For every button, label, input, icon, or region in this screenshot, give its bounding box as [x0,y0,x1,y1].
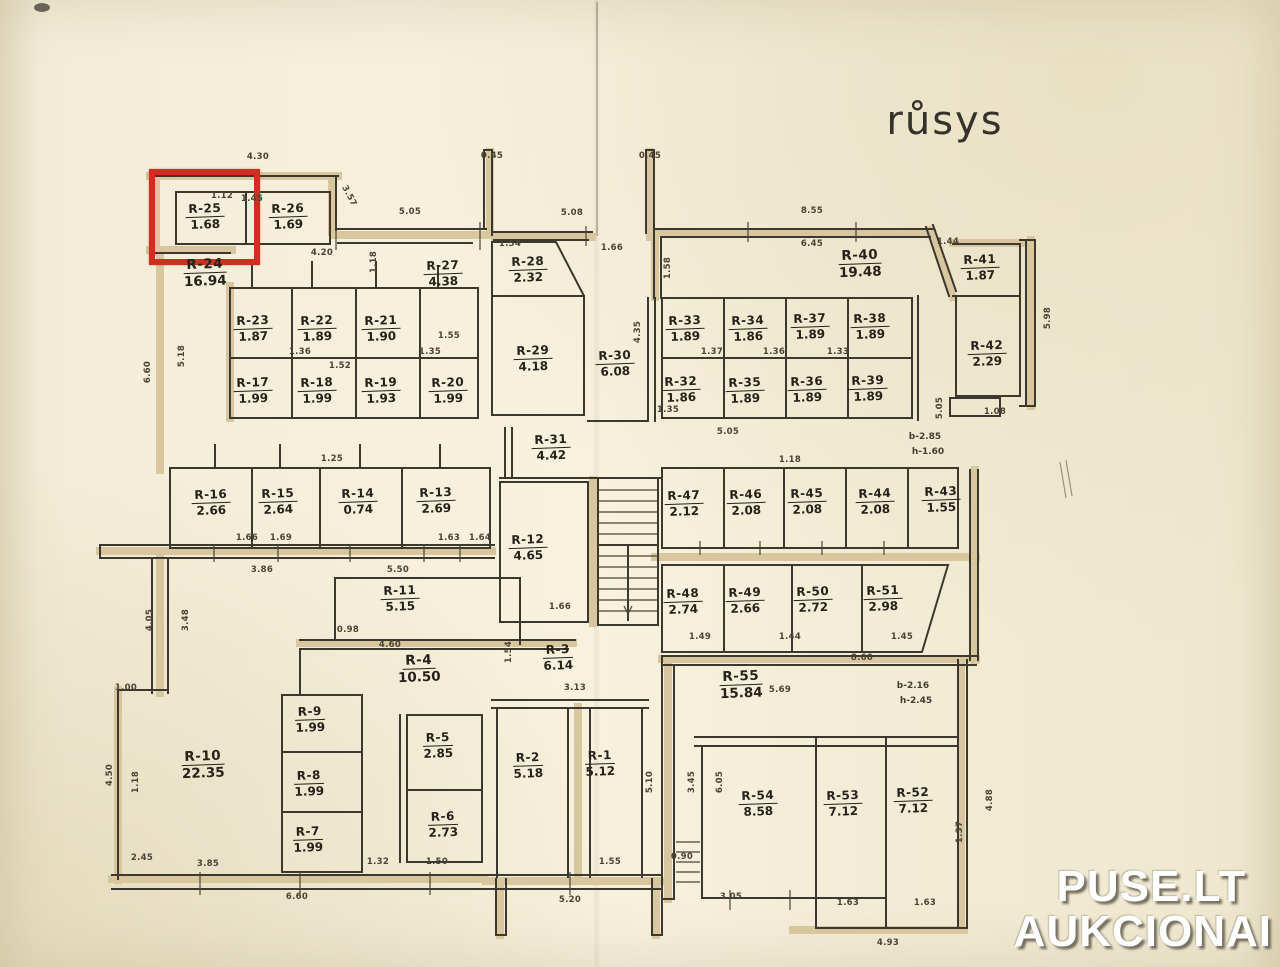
dimension-label: 1.63 [914,898,936,908]
dimension-label: 2.45 [131,853,153,863]
dimension-label: 1.69 [270,533,292,543]
room-label-r-13: R-132.69 [416,483,456,516]
dimension-label: 1.44 [937,237,959,247]
dimension-label: 1.37 [955,821,965,843]
dimension-label: 4.93 [877,938,899,948]
walls-thick-layer [100,152,1031,935]
dimension-label: 5.18 [177,345,187,367]
height-annotation: h-1.60 [912,447,944,457]
dimension-label: 3.05 [720,892,742,902]
room-label-r-16: R-162.66 [191,485,231,518]
room-label-r-47: R-472.12 [664,486,704,519]
height-annotation: b-2.85 [909,432,941,442]
dimension-label: 8.60 [851,653,873,663]
dimension-label: 5.50 [387,565,409,575]
room-label-r-43: R-431.55 [921,482,961,515]
room-label-r-8: R-81.99 [293,766,324,798]
dimension-label: 5.05 [399,207,421,217]
dimension-label: 6.60 [286,892,308,902]
room-label-r-44: R-442.08 [855,484,895,517]
room-label-r-53: R-537.12 [823,786,863,819]
dimension-label: 1.12 [211,191,233,201]
dimension-label: 5.08 [561,208,583,218]
room-label-r-10: R-1022.35 [181,747,225,782]
room-label-r-45: R-452.08 [787,484,827,517]
dimension-label: 5.10 [645,771,655,793]
room-label-r-30: R-306.08 [595,346,635,379]
height-annotation: b-2.16 [897,681,929,691]
room-label-r-25: R-251.68 [185,199,225,232]
dimension-label: 0.45 [481,151,503,161]
dimension-label: 5.69 [769,685,791,695]
dimension-label: 1.36 [763,347,785,357]
dimension-label: 4.60 [379,640,401,650]
room-label-r-12: R-124.65 [508,530,548,563]
room-label-r-18: R-181.99 [297,373,337,406]
dimension-label: 3.45 [687,771,697,793]
dimension-label: 1.49 [689,632,711,642]
room-label-r-7: R-71.99 [292,822,323,854]
dimension-label: 1.45 [241,194,263,204]
room-label-r-5: R-52.85 [422,728,453,760]
floor-plan-walls [0,0,1280,967]
scan-smudge [34,3,50,12]
dimension-label: 1.37 [701,347,723,357]
room-label-r-19: R-191.93 [361,373,401,406]
dimension-label: 1.44 [779,632,801,642]
room-label-r-24: R-2416.94 [183,255,227,290]
room-label-r-27: R-274.38 [423,256,463,289]
dimension-label: 3.48 [181,609,191,631]
room-label-r-48: R-482.74 [663,584,703,617]
room-label-r-20: R-201.99 [428,373,468,406]
dimension-label: 5.05 [935,397,945,419]
room-label-r-33: R-331.89 [665,311,705,344]
dimension-label: 1.55 [438,331,460,341]
dimension-label: 1.33 [827,347,849,357]
room-label-r-14: R-140.74 [338,484,378,517]
dimension-label: 1.18 [369,251,379,273]
dimension-label: 1.45 [891,632,913,642]
room-label-r-29: R-294.18 [513,341,553,374]
room-label-r-17: R-171.99 [233,373,273,406]
room-label-r-26: R-261.69 [268,199,308,232]
dimension-label: 1.32 [367,857,389,867]
dimension-label: 4.05 [145,609,155,631]
dimension-label: 1.66 [236,533,258,543]
dimension-label: 3.86 [251,565,273,575]
dimension-label: 5.20 [559,895,581,905]
dimension-label: 1.36 [289,347,311,357]
watermark-line2: AUKCIONAI [1014,909,1272,955]
room-label-r-28: R-282.32 [508,252,548,285]
dimension-label: 4.35 [633,321,643,343]
room-label-r-38: R-381.89 [850,309,890,342]
dimension-label: 3.13 [564,683,586,693]
room-label-r-1: R-15.12 [584,746,615,778]
room-label-r-40: R-4019.48 [838,246,882,281]
dimension-label: 1.35 [657,405,679,415]
room-label-r-32: R-321.86 [661,372,701,405]
dimension-label: 6.45 [801,239,823,249]
room-label-r-23: R-231.87 [233,311,273,344]
dimension-label: 1.50 [426,857,448,867]
room-label-r-9: R-91.99 [294,702,325,734]
room-label-r-54: R-548.58 [738,786,778,819]
room-label-r-42: R-422.29 [967,336,1007,369]
dimension-label: 0.98 [337,625,359,635]
dimension-label: 1.54 [499,239,521,249]
room-label-r-21: R-211.90 [361,311,401,344]
watermark: PUSE.LT AUKCIONAI [1014,864,1276,956]
dimension-label: 1.63 [837,898,859,908]
dimension-label: 1.66 [601,243,623,253]
room-label-r-41: R-411.87 [960,250,1000,283]
dimension-label: 5.05 [717,427,739,437]
room-label-r-6: R-62.73 [427,807,458,839]
dimension-label: 4.30 [247,152,269,162]
dimension-label: 6.05 [715,771,725,793]
dimension-label: 4.20 [311,248,333,258]
dimension-label: 5.98 [1043,307,1053,329]
room-label-r-39: R-391.89 [848,371,888,404]
room-label-r-15: R-152.64 [258,484,298,517]
dimension-label: 8.55 [801,206,823,216]
dimension-label: 1.25 [321,454,343,464]
dimension-label: 4.88 [985,789,995,811]
room-label-r-55: R-5515.84 [719,667,763,702]
room-label-r-31: R-314.42 [531,430,571,463]
dimension-label: 1.35 [419,347,441,357]
dimension-label: 0.90 [671,852,693,862]
dimension-label: 6.60 [143,361,153,383]
room-label-r-46: R-462.08 [726,485,766,518]
dimension-label: 1.66 [549,602,571,612]
dimension-label: 1.58 [663,257,673,279]
room-label-r-35: R-351.89 [725,373,765,406]
room-label-r-3: R-36.14 [542,640,573,672]
dimension-label: 4.50 [105,764,115,786]
room-label-r-49: R-492.66 [725,583,765,616]
dimension-label: 1.54 [504,641,514,663]
dimension-label: 1.63 [438,533,460,543]
dimension-label: 1.52 [329,361,351,371]
dimension-label: 1.18 [779,455,801,465]
dimension-label: 1.00 [115,683,137,693]
room-label-r-51: R-512.98 [863,581,903,614]
dimension-label: 3.85 [197,859,219,869]
plan-title: růsys [886,98,1003,144]
dimension-label: 0.45 [639,151,661,161]
dimension-label: 1.08 [984,407,1006,417]
dimension-label: 1.55 [599,857,621,867]
dimension-label: 1.64 [469,533,491,543]
room-label-r-22: R-221.89 [297,311,337,344]
room-label-r-34: R-341.86 [728,311,768,344]
floor-plan: růsys PUSE.LT AUKCIONAI R-251.68R-261.69… [0,0,1280,967]
height-annotation: h-2.45 [900,696,932,706]
room-label-r-11: R-115.15 [380,581,420,614]
room-label-r-52: R-527.12 [893,783,933,816]
room-label-r-36: R-361.89 [787,372,827,405]
room-label-r-37: R-371.89 [790,309,830,342]
dimension-label: 1.18 [131,771,141,793]
room-label-r-2: R-25.18 [512,748,543,780]
room-label-r-50: R-502.72 [793,582,833,615]
room-label-r-4: R-410.50 [397,651,441,686]
watermark-line1: PUSE.LT [1014,864,1246,910]
